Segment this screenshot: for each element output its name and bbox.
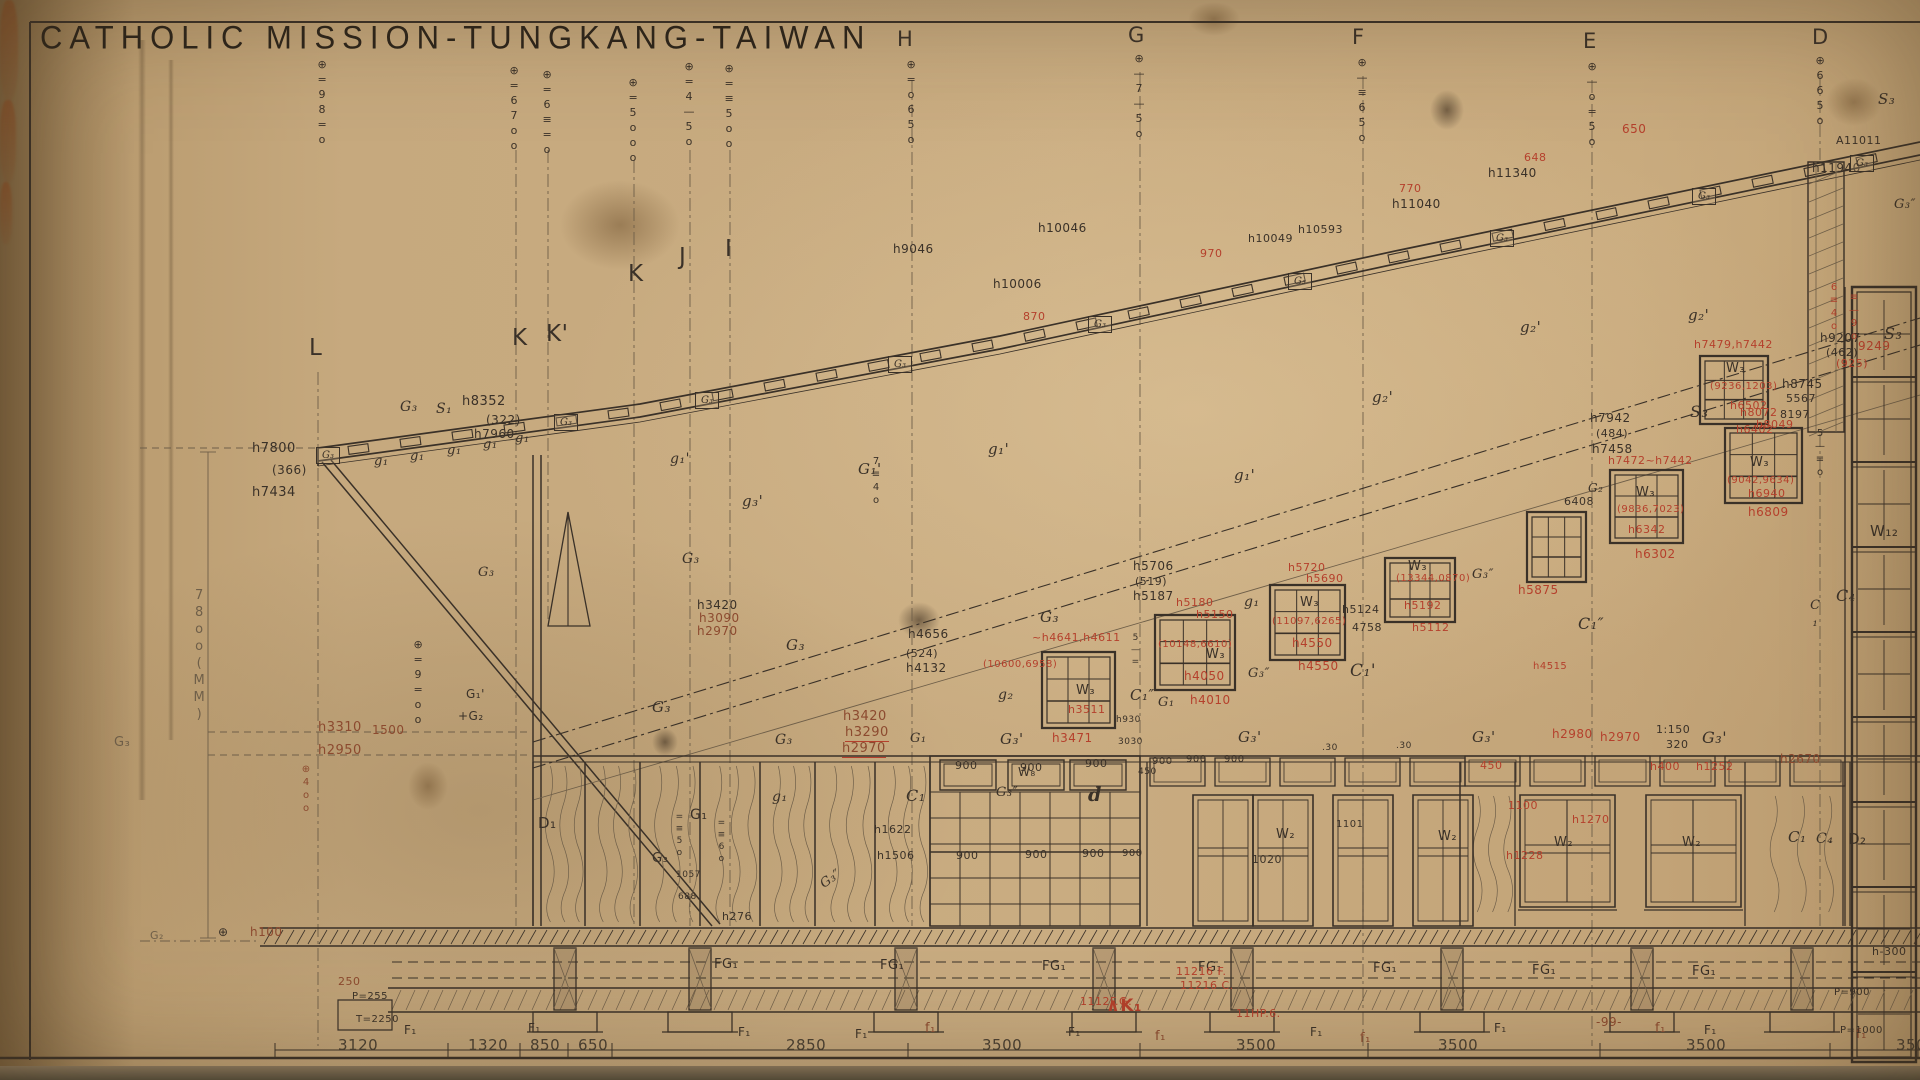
elevation-column: ⊕=4—5o — [683, 60, 695, 150]
annotation-label: 770 — [1399, 183, 1422, 195]
annotation-label: h9046 — [893, 243, 934, 256]
annotation-label: F₁ — [738, 1026, 751, 1039]
annotation-label: h4010 — [1190, 694, 1231, 707]
grid-letter-top: D — [1812, 26, 1829, 48]
annotation-label: G₃ — [1040, 610, 1059, 626]
annotation-label: g₁' — [1234, 468, 1255, 484]
annotation-label: S₁ — [436, 402, 452, 417]
annotation-label: C₁' — [1350, 663, 1376, 681]
annotation-label: h8352 — [462, 395, 506, 409]
annotation-label: (524) — [906, 648, 938, 660]
structure-linework — [0, 0, 1920, 1080]
annotation-label: 5567 — [1786, 393, 1816, 405]
annotation-label: 900 — [1085, 758, 1108, 770]
window-label: W₃ — [1726, 362, 1745, 376]
annotation-label: (366) — [272, 464, 307, 477]
annotation-label: h400 — [1650, 761, 1680, 773]
annotation-label: 1020 — [1252, 854, 1282, 866]
annotation-label: h5124 — [1342, 604, 1379, 616]
annotation-label: h5187 — [1133, 590, 1174, 603]
annotation-label: 900 — [955, 760, 978, 772]
annotation-label: 688 — [678, 893, 697, 902]
annotation-label: 900 — [1020, 762, 1043, 774]
annotation-label: h5112 — [1412, 622, 1449, 634]
annotation-label: h5706 — [1133, 560, 1174, 573]
annotation-label: G₃ — [400, 400, 418, 415]
annotation-label: 900 — [1025, 849, 1048, 861]
annotation-label: h4550 — [1292, 637, 1333, 650]
annotation-label: G₂ — [1588, 482, 1603, 495]
annotation-label: A11011 — [1836, 135, 1882, 147]
annotation-label: h2970 — [842, 742, 886, 758]
annotation-label: F₁ — [1494, 1022, 1507, 1035]
annotation-label: F₁ — [404, 1024, 417, 1037]
annotation-label: 450 — [1480, 760, 1503, 772]
annotation-label: -99- — [1596, 1016, 1622, 1029]
annotation-label: h6502 — [1730, 400, 1767, 412]
annotation-label: W₂ — [1276, 828, 1295, 842]
annotation-label: G₃' — [1472, 730, 1496, 746]
annotation-label: 900 — [956, 850, 979, 862]
grid-letter-top: G — [1128, 24, 1145, 46]
annotation-label: G₁' — [466, 688, 485, 701]
annotation-label: 1100 — [1508, 800, 1538, 812]
annotation-label: S₃ — [1690, 404, 1708, 421]
annotation-label: h4050 — [1184, 670, 1225, 683]
annotation-label: h2970 — [1600, 731, 1641, 744]
annotation-label: h3420 — [843, 710, 887, 724]
annotation-label: h5180 — [1176, 597, 1213, 609]
annotation-label: g₁ — [374, 455, 389, 469]
annotation-label: (13344,0870) — [1396, 574, 1470, 585]
annotation-label: W₂ — [1554, 836, 1573, 850]
annotation-label: W₂ — [1682, 836, 1701, 850]
annotation-label: (9236,1203) — [1710, 382, 1777, 393]
annotation-label: h2970 — [697, 625, 738, 638]
grid-letter-left: I — [725, 237, 732, 261]
annotation-label: h100 — [250, 926, 283, 939]
annotation-label: 5—= — [1130, 633, 1139, 669]
dimension-value: 3500 — [1438, 1038, 1478, 1054]
annotation-label: (519) — [1135, 576, 1167, 588]
annotation-label: 5—≡o — [1814, 428, 1825, 480]
annotation-label: 900 — [1082, 848, 1105, 860]
annotation-label: h4132 — [906, 662, 947, 675]
annotation-label: h7942 — [1590, 412, 1631, 425]
annotation-label: d — [1088, 786, 1102, 806]
annotation-label: h2950 — [318, 744, 362, 758]
sheet-title: CATHOLIC MISSION-TUNGKANG-TAIWAN — [40, 19, 871, 57]
annotation-label: .30 — [1322, 744, 1338, 753]
annotation-label: 6408 — [1564, 496, 1594, 508]
annotation-label: f₁ — [1655, 1022, 1666, 1036]
window-label: W₃ — [1076, 684, 1095, 698]
annotation-label: g₁ — [772, 790, 788, 805]
annotation-label: G₃ — [786, 638, 805, 654]
window-label: W₁₂ — [1870, 524, 1898, 540]
annotation-label: S₃ — [1878, 92, 1895, 108]
annotation-label: C₁ — [1808, 598, 1822, 632]
annotation-label: h4515 — [1533, 662, 1567, 673]
annotation-label: f₁ — [1155, 1030, 1166, 1044]
annotation-label: h1252 — [1696, 761, 1733, 773]
annotation-label: h1228 — [1506, 850, 1543, 862]
annotation-label: h11340 — [1488, 167, 1537, 180]
annotation-label: G₃ — [114, 736, 130, 750]
boxed-g3-marker: G₃ — [316, 447, 340, 464]
elevation-column: ⊕—≡65o — [1356, 56, 1368, 146]
annotation-label: g₂' — [1372, 390, 1393, 406]
boxed-g3-marker: G₃ — [1850, 155, 1874, 172]
annotation-label: h6302 — [1635, 548, 1676, 561]
annotation-label: f₁ — [925, 1022, 936, 1036]
dimension-value: 650 — [578, 1038, 608, 1054]
grid-letter-left: K' — [546, 322, 568, 346]
annotation-label: g₁ — [1244, 595, 1260, 610]
annotation-label: 11216 F. — [1176, 966, 1227, 978]
annotation-label: FG₁ — [714, 958, 738, 972]
elevation-column: ⊕=98=o — [316, 58, 328, 148]
annotation-label: h1270 — [1572, 814, 1609, 826]
annotation-label: G₃″ — [996, 786, 1018, 800]
annotation-label: g₂' — [1520, 320, 1541, 336]
annotation-label: h1622 — [874, 824, 911, 836]
window-label: W₃ — [1206, 648, 1225, 662]
boxed-g3-marker: G₃ — [1490, 230, 1514, 247]
annotation-label: h11040 — [1392, 198, 1441, 211]
annotation-label: 250 — [338, 976, 361, 988]
annotation-label: h6402 — [1736, 424, 1773, 436]
annotation-label: =≡6o — [716, 818, 725, 866]
annotation-label: FG₁ — [1692, 965, 1716, 979]
annotation-label: 11HP.6. — [1236, 1008, 1281, 1020]
annotation-label: .30 — [1396, 742, 1412, 751]
boxed-g3-marker: G₃ — [1288, 273, 1312, 290]
annotation-label: g₁ — [447, 444, 462, 458]
annotation-label: g₁' — [670, 452, 690, 467]
annotation-label: ~h4641,h4611 — [1032, 632, 1121, 644]
elevation-column: ⊕=o65o — [905, 58, 917, 148]
annotation-label: G₃' — [1238, 730, 1262, 746]
annotation-label: ∧K₁ — [1106, 998, 1142, 1016]
elevation-column: ⊕=5ooo — [627, 76, 639, 166]
annotation-label: 900 — [1224, 755, 1245, 766]
annotation-label: (9836,7023) — [1617, 505, 1684, 516]
annotation-label: h930 — [1116, 716, 1141, 725]
annotation-label: D₂ — [1848, 832, 1867, 848]
annotation-label: g₂' — [1688, 308, 1709, 324]
dimension-value: 3500 — [1236, 1038, 1276, 1054]
annotation-label: FG₁ — [1042, 960, 1066, 974]
annotation-label: F₁ — [1068, 1026, 1081, 1039]
annotation-label: FG₁ — [880, 959, 904, 973]
annotation-label: F₁ — [528, 1022, 541, 1035]
annotation-label: 650 — [1622, 123, 1646, 136]
annotation-label: G₃ — [652, 700, 671, 716]
annotation-label: h7479,h7442 — [1694, 339, 1773, 351]
annotation-label: h3471 — [1052, 732, 1093, 745]
annotation-label: h6940 — [1748, 488, 1785, 500]
annotation-label: h4550 — [1298, 660, 1339, 673]
dimension-value: 2850 — [786, 1038, 826, 1054]
window-label: W₃ — [1636, 486, 1655, 500]
annotation-label: C₁ — [1788, 830, 1807, 846]
annotation-label: h5875 — [1518, 584, 1559, 597]
annotation-label: FG₁ — [1373, 962, 1397, 976]
annotation-label: F₁ — [1310, 1026, 1323, 1039]
annotation-label: g₁ — [410, 450, 425, 464]
annotation-label: G₃ — [682, 552, 700, 567]
annotation-label: C₁″ — [1578, 616, 1604, 633]
annotation-label: ⊕4oo — [300, 764, 311, 816]
dimension-value: 850 — [530, 1038, 560, 1054]
grid-letter-left: J — [679, 245, 686, 269]
annotation-label: g₁ — [483, 438, 498, 452]
annotation-label: h5150 — [1196, 609, 1233, 621]
annotation-label: G₃ — [652, 852, 668, 866]
annotation-label: h6809 — [1748, 506, 1789, 519]
elevation-column: ⊕—o=5o — [1586, 60, 1598, 150]
annotation-label: 1:150 — [1656, 724, 1690, 736]
annotation-label: g₁' — [988, 442, 1009, 458]
annotation-label: h7434 — [252, 486, 296, 500]
annotation-label: =≡5o — [674, 812, 683, 860]
annotation-label: (925) — [1836, 358, 1868, 370]
dimension-value: 350 — [1896, 1038, 1920, 1054]
annotation-label: h10046 — [1038, 222, 1087, 235]
boxed-g3-marker: G₃ — [1088, 316, 1112, 333]
annotation-label: 1500 — [372, 724, 405, 737]
annotation-label: T=2250 — [356, 1015, 399, 1026]
annotation-label: 9249 — [1858, 340, 1891, 353]
annotation-label: 3030 — [1118, 738, 1143, 747]
annotation-label: ≡—9o — [1848, 292, 1859, 344]
elevation-column: ⊕=≡5oo — [723, 62, 735, 152]
annotation-label: FG₁ — [1532, 964, 1556, 978]
annotation-label: G₃″ — [1248, 667, 1270, 681]
elevation-column: ⊕=9=oo — [412, 638, 424, 728]
annotation-label: C₁ — [906, 788, 926, 805]
annotation-label: (11097,6265) — [1272, 617, 1346, 628]
annotation-label: C₄ — [1816, 832, 1833, 847]
annotation-label: G₃' — [1000, 732, 1024, 748]
grid-letter-left: K — [628, 262, 644, 286]
dimension-value: 3500 — [982, 1038, 1022, 1054]
annotation-label: h3290 — [845, 726, 889, 742]
annotation-label: 870 — [1023, 311, 1046, 323]
annotation-label: C₄ — [1836, 588, 1856, 605]
annotation-label: f₁ — [1360, 1032, 1371, 1046]
annotation-label: h10006 — [993, 278, 1042, 291]
annotation-label: h3310 — [318, 721, 362, 735]
annotation-label: D₁ — [538, 816, 557, 832]
annotation-label: G₃″ — [1472, 568, 1494, 582]
annotation-label: C₁″ — [1130, 688, 1155, 704]
annotation-label: G₁ — [1158, 696, 1175, 710]
annotation-label: G₃ — [478, 566, 495, 580]
annotation-label: h5192 — [1404, 600, 1441, 612]
grid-letter-top: H — [897, 28, 913, 50]
annotation-label: (322) — [486, 414, 521, 427]
annotation-label: 7≡4o — [870, 456, 881, 508]
dimension-value: 1320 — [468, 1038, 508, 1054]
window-label: W₃ — [1300, 596, 1319, 610]
annotation-label: h7800 — [252, 442, 296, 456]
annotation-label: (9042,9634) — [1727, 476, 1794, 487]
annotation-label: 4758 — [1352, 622, 1382, 634]
annotation-label: 1101 — [1336, 820, 1363, 831]
annotation-label: 648 — [1524, 152, 1547, 164]
annotation-label: G₁ — [910, 732, 927, 746]
annotation-label: 1057 — [676, 871, 701, 880]
annotation-label: 970 — [1200, 248, 1223, 260]
annotation-label: +G₂ — [458, 710, 484, 723]
annotation-label: 900 — [1186, 755, 1207, 766]
annotation-label: F₁ — [1704, 1024, 1717, 1037]
dimension-value: 3120 — [338, 1038, 378, 1054]
boxed-g3-marker: G₃ — [554, 414, 578, 431]
annotation-label: G₃″ — [1894, 198, 1916, 212]
annotation-label: 320 — [1666, 739, 1689, 751]
annotation-label: h4656 — [908, 628, 949, 641]
drawing-sheet: CATHOLIC MISSION-TUNGKANG-TAIWAN H⊕=o65o… — [0, 0, 1920, 1080]
annotation-label: g₁ — [515, 432, 530, 446]
elevation-column: ⊕=6≡=o — [541, 68, 553, 158]
annotation-label: F₁ — [855, 1028, 868, 1041]
annotation-label: G₃ — [775, 733, 793, 748]
annotation-label: g₂ — [998, 688, 1014, 703]
window-label: W₃ — [1408, 560, 1427, 574]
window-label: W₃ — [1750, 456, 1769, 470]
annotation-label: G₁ — [690, 808, 707, 823]
annotation-label: h8745 — [1782, 378, 1823, 391]
annotation-label: h3511 — [1068, 704, 1105, 716]
annotation-label: ⊕ — [218, 926, 229, 939]
elevation-column: ⊕665o — [1814, 54, 1826, 129]
grid-letter-left: K — [512, 326, 528, 350]
elevation-column: ⊕=67oo — [508, 64, 520, 154]
annotation-label: 450 — [1138, 768, 1157, 777]
boxed-g3-marker: G₃ — [695, 392, 719, 409]
annotation-label: h-300 — [1872, 946, 1906, 958]
annotation-label: P=900 — [1834, 988, 1870, 999]
annotation-label: (10600,6958) — [983, 660, 1057, 671]
boxed-g3-marker: G₃ — [888, 356, 912, 373]
annotation-label: 900 — [1122, 849, 1143, 860]
annotation-label: h276 — [722, 911, 752, 923]
annotation-label: P=1000 — [1840, 1026, 1883, 1037]
annotation-label: h5690 — [1306, 573, 1343, 585]
boxed-g3-marker: G₃ — [1692, 188, 1716, 205]
annotation-label: 900 — [1152, 757, 1173, 768]
annotation-label: h10049 — [1248, 233, 1293, 245]
annotation-label: G₃' — [1702, 730, 1727, 747]
annotation-label: (484) — [1596, 428, 1628, 440]
elevation-column: ⊕—7—5o — [1133, 52, 1145, 142]
annotation-label: h6342 — [1628, 524, 1665, 536]
annotation-label: h2670 — [1780, 753, 1821, 766]
grid-letter-top: F — [1352, 26, 1365, 48]
grid-letter-left: L — [309, 336, 322, 360]
annotation-label: h7472~h7442 — [1608, 455, 1693, 467]
annotation-label: G₂ — [150, 930, 164, 942]
annotation-label: h3420 — [697, 599, 738, 612]
height-scale-note: 78oo(MM) — [192, 588, 206, 724]
annotation-label: h2980 — [1552, 728, 1593, 741]
annotation-label: h10593 — [1298, 224, 1343, 236]
annotation-label: P=255 — [352, 992, 388, 1003]
annotation-label: 11216 C. — [1180, 980, 1234, 992]
annotation-label: h3090 — [699, 612, 740, 625]
annotation-label: W₂ — [1438, 830, 1457, 844]
annotation-label: 6≡4o — [1828, 282, 1839, 334]
annotation-label: h1506 — [877, 850, 914, 862]
annotation-label: g₃' — [742, 494, 763, 510]
dimension-value: 3500 — [1686, 1038, 1726, 1054]
grid-letter-top: E — [1583, 30, 1597, 52]
